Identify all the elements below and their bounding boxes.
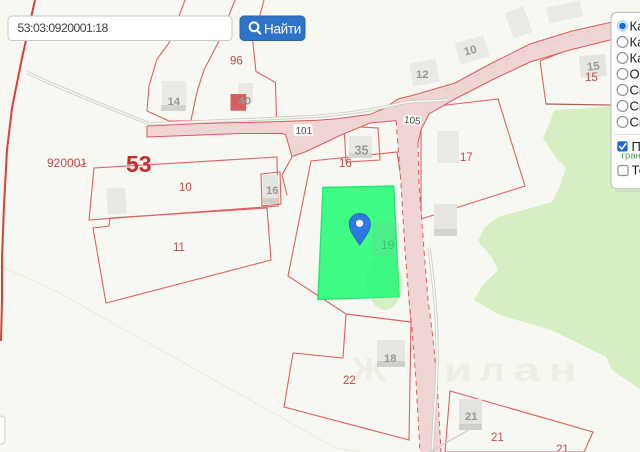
svg-text:21: 21 (556, 444, 569, 452)
svg-text:105: 105 (403, 115, 421, 128)
svg-text:10: 10 (179, 182, 192, 194)
svg-text:Спутник: Спутник (630, 115, 640, 130)
svg-text:15: 15 (587, 60, 601, 73)
svg-text:Спутник: Спутник (630, 99, 640, 114)
svg-text:л: л (479, 351, 505, 388)
svg-text:21: 21 (491, 432, 504, 444)
svg-text:Карта: Карта (630, 35, 640, 50)
svg-text:а: а (513, 351, 541, 388)
svg-text:35: 35 (355, 144, 369, 158)
svg-text:21: 21 (465, 411, 478, 423)
svg-text:17: 17 (460, 152, 473, 164)
svg-text:н: н (549, 351, 577, 388)
svg-text:11: 11 (173, 242, 185, 254)
svg-text:16: 16 (339, 158, 352, 170)
svg-text:53: 53 (126, 151, 152, 177)
svg-text:границ: границ (622, 150, 640, 161)
svg-text:101: 101 (296, 126, 313, 137)
svg-text:и: и (444, 351, 472, 388)
svg-text:Тем: Тем (632, 163, 640, 178)
svg-text:Карта: Карта (630, 19, 640, 34)
svg-text:920001: 920001 (47, 156, 87, 170)
svg-text:22: 22 (343, 375, 356, 387)
svg-text:Карта: Карта (630, 51, 640, 66)
svg-text:Спутник: Спутник (630, 83, 640, 98)
svg-text:18: 18 (384, 353, 397, 365)
svg-text:15: 15 (585, 72, 598, 84)
svg-text:16: 16 (266, 185, 279, 197)
svg-text:53:03:0920001:18: 53:03:0920001:18 (18, 21, 109, 35)
svg-text:Орто: Орто (630, 67, 640, 82)
svg-text:96: 96 (230, 56, 243, 68)
svg-text:40: 40 (239, 96, 252, 108)
svg-text:19: 19 (381, 238, 395, 252)
svg-text:Найти: Найти (264, 21, 301, 36)
svg-text:14: 14 (168, 96, 181, 108)
svg-text:12: 12 (416, 69, 429, 81)
